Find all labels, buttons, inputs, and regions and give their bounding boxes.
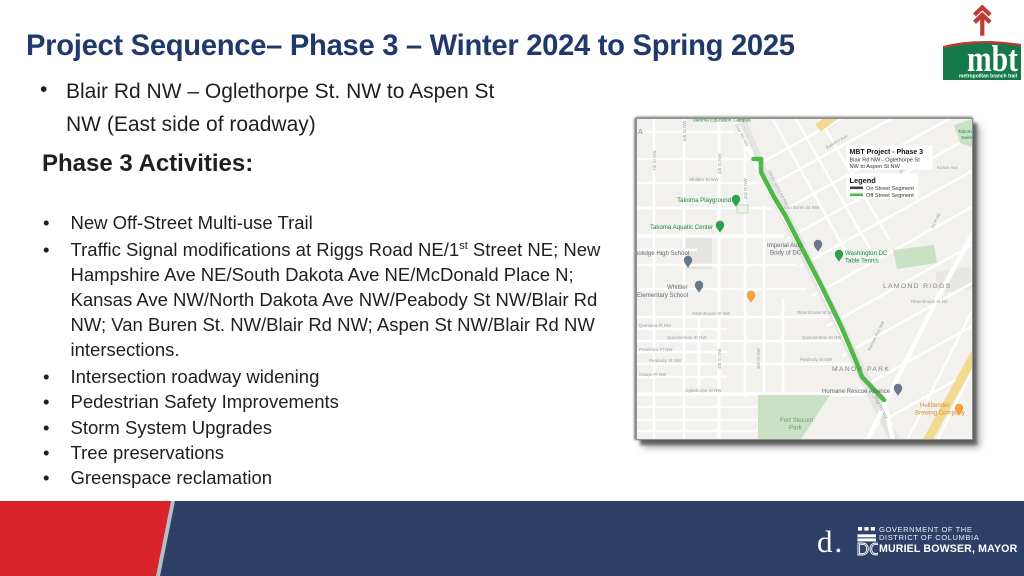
svg-text:Whittier St NW: Whittier St NW xyxy=(689,177,719,182)
svg-text:NW to Aspen St NW: NW to Aspen St NW xyxy=(850,163,901,169)
svg-text:Takoma Playground: Takoma Playground xyxy=(677,197,731,204)
svg-text:Quintana Pl NW: Quintana Pl NW xyxy=(639,323,672,328)
svg-text:A: A xyxy=(638,129,644,136)
svg-text:MANOR PARK: MANOR PARK xyxy=(832,366,890,373)
svg-text:Oglethorpe St NW: Oglethorpe St NW xyxy=(685,388,722,393)
svg-text:Swim: Swim xyxy=(961,135,972,140)
svg-text:Whittier: Whittier xyxy=(667,284,688,291)
svg-text:Kiowa Ave: Kiowa Ave xyxy=(937,165,958,170)
svg-text:metropolitan branch trail: metropolitan branch trail xyxy=(959,74,1017,80)
svg-text:Body of DC: Body of DC xyxy=(770,249,802,256)
svg-text:5th St NW: 5th St NW xyxy=(682,119,687,140)
svg-text:Takoma Aquatic Center: Takoma Aquatic Center xyxy=(650,224,713,231)
svg-text:4th St NW: 4th St NW xyxy=(717,347,722,368)
svg-text:4th St NW: 4th St NW xyxy=(717,152,722,173)
svg-text:Rittenhouse St NE: Rittenhouse St NE xyxy=(911,299,948,304)
svg-text:Takoma: Takoma xyxy=(958,129,972,134)
svg-text:Rittenhouse St NW: Rittenhouse St NW xyxy=(692,311,731,316)
svg-text:Table Tennis: Table Tennis xyxy=(845,257,879,264)
svg-text:Elementary School: Elementary School xyxy=(637,292,688,299)
svg-text:3rd St NW: 3rd St NW xyxy=(743,177,748,199)
svg-text:Humane Rescue Alliance: Humane Rescue Alliance xyxy=(822,388,891,395)
svg-text:Imperial Auto: Imperial Auto xyxy=(767,242,803,249)
svg-text:Pondview Pl NW: Pondview Pl NW xyxy=(639,347,673,352)
svg-text:Peabody St NW: Peabody St NW xyxy=(800,357,833,362)
svg-text:DC: DC xyxy=(857,539,878,557)
svg-text:Quackenbos St NW: Quackenbos St NW xyxy=(802,335,842,340)
svg-text:Fort Slocum: Fort Slocum xyxy=(780,417,813,424)
svg-text:On Street Segment: On Street Segment xyxy=(866,186,914,192)
svg-text:Quackenbos St NW: Quackenbos St NW xyxy=(667,335,707,340)
svg-text:Osage Pl NW: Osage Pl NW xyxy=(639,372,667,377)
svg-text:Rittenhouse St NW: Rittenhouse St NW xyxy=(797,310,836,315)
svg-text:Park: Park xyxy=(789,424,803,431)
svg-text:Off Street Segment: Off Street Segment xyxy=(866,193,914,199)
svg-text:Blair Rd NW - Oglethorpe St: Blair Rd NW - Oglethorpe St xyxy=(850,157,921,163)
svg-text:Legend: Legend xyxy=(850,176,877,185)
svg-text:LAMOND RIGGS: LAMOND RIGGS xyxy=(883,283,951,290)
svg-text:Takoma Education Campus: Takoma Education Campus xyxy=(692,119,751,124)
svg-text:7th St NW: 7th St NW xyxy=(652,149,657,170)
svg-text:Washington DC: Washington DC xyxy=(845,250,888,257)
svg-text:Hellbender: Hellbender xyxy=(920,402,949,409)
svg-text:Peabody St NW: Peabody St NW xyxy=(649,358,682,363)
svg-text:oolidge High School: oolidge High School xyxy=(637,250,689,257)
svg-text:Van Buren St NW: Van Buren St NW xyxy=(784,205,820,210)
svg-text:3rd St NW: 3rd St NW xyxy=(756,347,761,369)
svg-text:MBT Project - Phase 3: MBT Project - Phase 3 xyxy=(850,149,924,156)
